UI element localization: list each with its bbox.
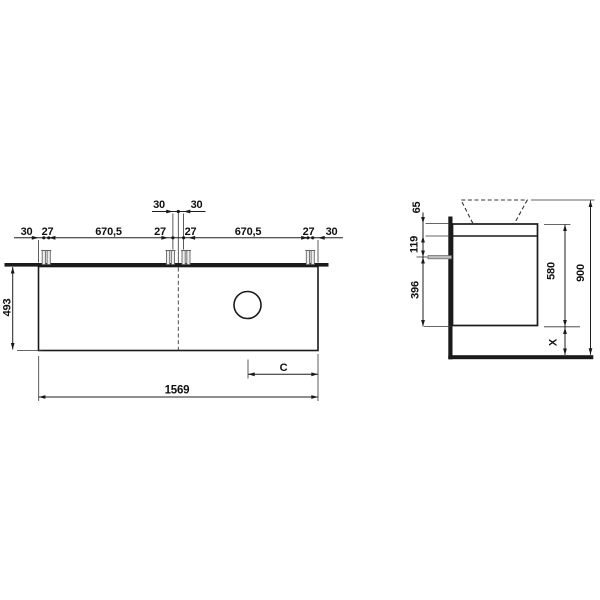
mounting-screw <box>310 251 315 265</box>
arrowhead <box>421 251 425 258</box>
dim-label-cabinet-height: 580 <box>545 262 557 280</box>
arrowhead <box>563 320 567 327</box>
arrowhead <box>421 217 425 224</box>
dim-label-cutout-offset: C <box>280 362 288 374</box>
dim-cutout-offset: C <box>248 360 318 379</box>
cabinet-side-body <box>453 224 538 326</box>
dim-label-top-rail: 65 <box>411 202 423 214</box>
arrowhead <box>11 343 15 350</box>
mounting-screw-side <box>428 256 452 259</box>
arrowhead <box>318 236 325 240</box>
side-view: 65 119 396 580 X 900 <box>408 200 594 359</box>
dim-label-span-left: 670,5 <box>95 226 122 238</box>
mounting-screw <box>305 251 310 265</box>
mounting-screw <box>186 251 191 265</box>
dim-label-height-front: 493 <box>2 299 14 317</box>
mounting-screw <box>170 251 175 265</box>
dim-label-pair-center-left: 27 <box>154 226 166 238</box>
arrowhead <box>166 210 173 214</box>
arrowhead <box>11 267 15 274</box>
arrowhead <box>32 236 39 240</box>
arrowhead <box>421 257 425 264</box>
dim-cabinet-height: 580 X <box>544 225 580 356</box>
front-view: 30 30 30 27 670,5 27 27 670,5 2 <box>2 199 343 401</box>
dim-label-width-front: 1569 <box>165 385 190 397</box>
dim-label-screw-offset: 119 <box>408 236 420 253</box>
dim-width-front: 1569 <box>39 354 318 401</box>
arrowhead <box>248 372 255 376</box>
vanity-dimension-drawing: 30 30 30 27 670,5 27 27 670,5 2 <box>0 0 600 600</box>
dim-label-upper-right: 30 <box>191 199 203 211</box>
arrowhead <box>589 201 593 208</box>
mounting-screw <box>166 251 171 265</box>
dim-label-pair-right: 27 <box>303 226 315 238</box>
mounting-screw <box>46 251 51 265</box>
dim-height-front: 493 <box>2 267 43 351</box>
dim-label-span-right: 670,5 <box>235 226 262 238</box>
dim-label-pair-center-right: 27 <box>185 226 197 238</box>
dim-label-edge-right: 30 <box>326 226 338 238</box>
arrowhead <box>563 328 567 335</box>
arrowhead <box>421 320 425 327</box>
arrowhead <box>39 395 46 399</box>
washbasin-dashed-outline <box>461 200 527 223</box>
dim-dot <box>171 236 174 239</box>
basin-cutout-circle <box>234 292 261 319</box>
arrowhead <box>589 348 593 355</box>
arrowhead <box>563 349 567 356</box>
dim-label-edge-left: 30 <box>21 226 33 238</box>
arrowhead <box>311 372 318 376</box>
dim-total-height: 900 <box>531 200 595 355</box>
arrowhead <box>311 395 318 399</box>
technical-drawing-page: 30 30 30 27 670,5 27 27 670,5 2 <box>0 0 600 600</box>
floor <box>448 355 593 359</box>
arrowhead <box>421 236 425 243</box>
dim-label-total-height: 900 <box>575 264 587 282</box>
dim-label-upper-left: 30 <box>153 199 165 211</box>
mounting-screw <box>181 251 186 265</box>
mounting-screw <box>41 251 46 265</box>
dim-chain-side-left: 65 119 396 <box>408 202 451 327</box>
dim-label-lower-section: 396 <box>409 281 421 299</box>
arrowhead <box>184 210 191 214</box>
arrowhead <box>563 225 567 232</box>
dim-label-pair-left: 27 <box>42 226 54 238</box>
dim-label-bottom-clearance: X <box>547 338 559 346</box>
dim-dot <box>177 210 180 213</box>
